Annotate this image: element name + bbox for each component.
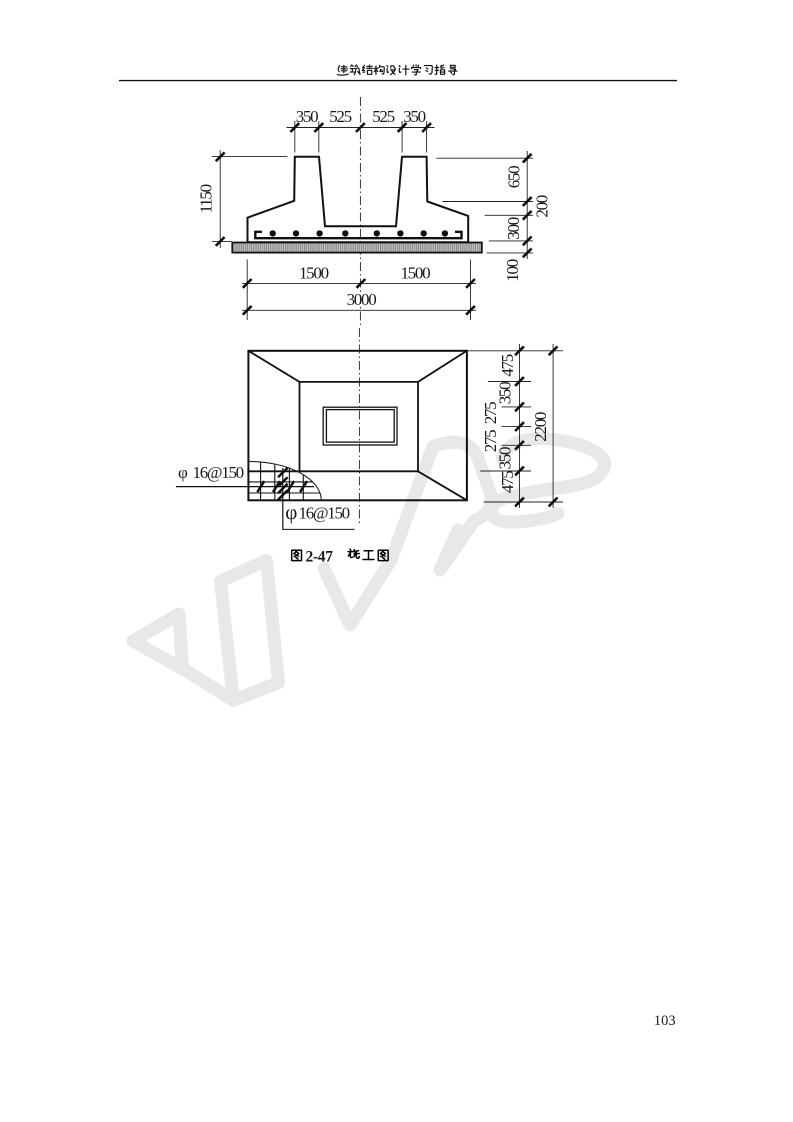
svg-text:300: 300 <box>504 217 523 239</box>
svg-text:100: 100 <box>503 259 522 281</box>
svg-text:350: 350 <box>496 382 515 404</box>
svg-text:φ: φ <box>285 500 297 524</box>
svg-text:475: 475 <box>498 471 517 493</box>
svg-text:525: 525 <box>372 107 394 126</box>
svg-text:200: 200 <box>533 195 552 217</box>
svg-text:16@150: 16@150 <box>299 504 350 523</box>
svg-text:275: 275 <box>481 402 500 424</box>
svg-text:φ: φ <box>178 463 188 482</box>
svg-text:1500: 1500 <box>400 263 430 282</box>
svg-text:525: 525 <box>329 107 351 126</box>
svg-text:350: 350 <box>496 447 515 469</box>
svg-text:103: 103 <box>654 1013 676 1029</box>
svg-text:1150: 1150 <box>197 184 216 213</box>
svg-text:1500: 1500 <box>299 263 329 282</box>
svg-text:350: 350 <box>403 107 425 126</box>
svg-text:2200: 2200 <box>531 412 550 442</box>
svg-text:350: 350 <box>296 107 318 126</box>
svg-text:650: 650 <box>505 166 524 188</box>
svg-text:2-47: 2-47 <box>306 549 334 566</box>
svg-text:475: 475 <box>498 354 517 376</box>
svg-text:3000: 3000 <box>347 290 377 309</box>
svg-text:16@150: 16@150 <box>193 463 244 482</box>
